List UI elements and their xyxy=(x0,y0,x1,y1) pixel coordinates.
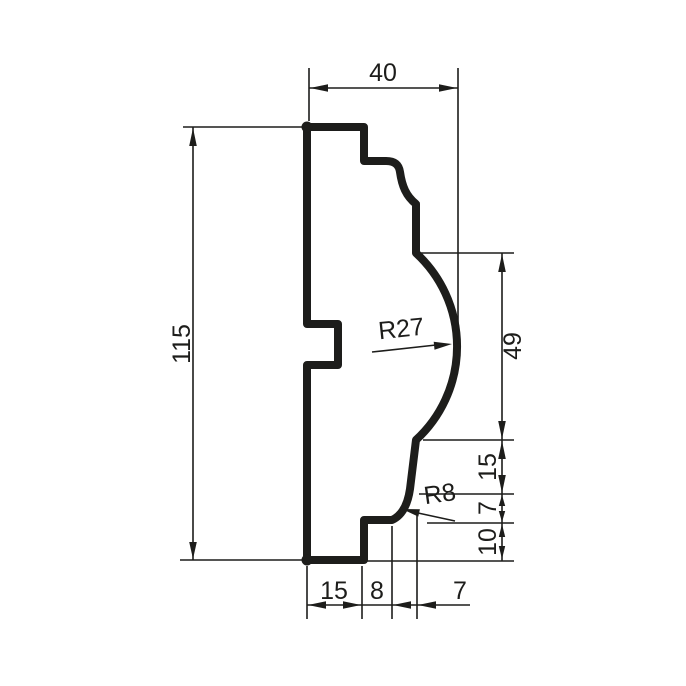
arrowhead-right xyxy=(439,84,457,92)
dim-right-lower-label: 10 xyxy=(474,528,502,556)
dim-right-mid-label: 7 xyxy=(474,501,502,515)
arrowhead-right xyxy=(434,342,452,350)
dim-bottom-chain: 15 8 7 xyxy=(307,513,470,619)
dim-right-upper-label: 15 xyxy=(474,453,502,481)
dim-top-width: 40 xyxy=(309,59,458,344)
moulding-profile-drawing: 40 115 49 15 7 10 xyxy=(0,0,686,686)
dim-overall-height-label: 115 xyxy=(168,324,196,364)
radius-fillet-label: R8 xyxy=(422,478,458,510)
dim-bottom-front-label: 7 xyxy=(453,577,467,605)
arrowhead-outside xyxy=(418,601,436,609)
dim-cove-height-label: 49 xyxy=(499,332,527,360)
leader-line xyxy=(418,513,455,521)
arrowhead-up xyxy=(498,254,506,272)
radius-cove-label: R27 xyxy=(377,313,426,346)
arrowhead-outside xyxy=(393,601,411,609)
arrowhead-left xyxy=(310,84,328,92)
leader-r27: R27 xyxy=(372,313,452,352)
drawing-canvas: 40 115 49 15 7 10 xyxy=(0,0,686,686)
dim-bottom-back-label: 15 xyxy=(320,577,348,605)
leader-line xyxy=(372,345,436,352)
arrowhead-down xyxy=(189,542,197,559)
dim-overall-height: 115 xyxy=(168,127,305,560)
dim-top-width-label: 40 xyxy=(369,59,397,87)
arrowhead-up xyxy=(189,128,197,146)
dim-bottom-step-label: 8 xyxy=(370,577,384,605)
arrowhead-down xyxy=(498,421,506,439)
